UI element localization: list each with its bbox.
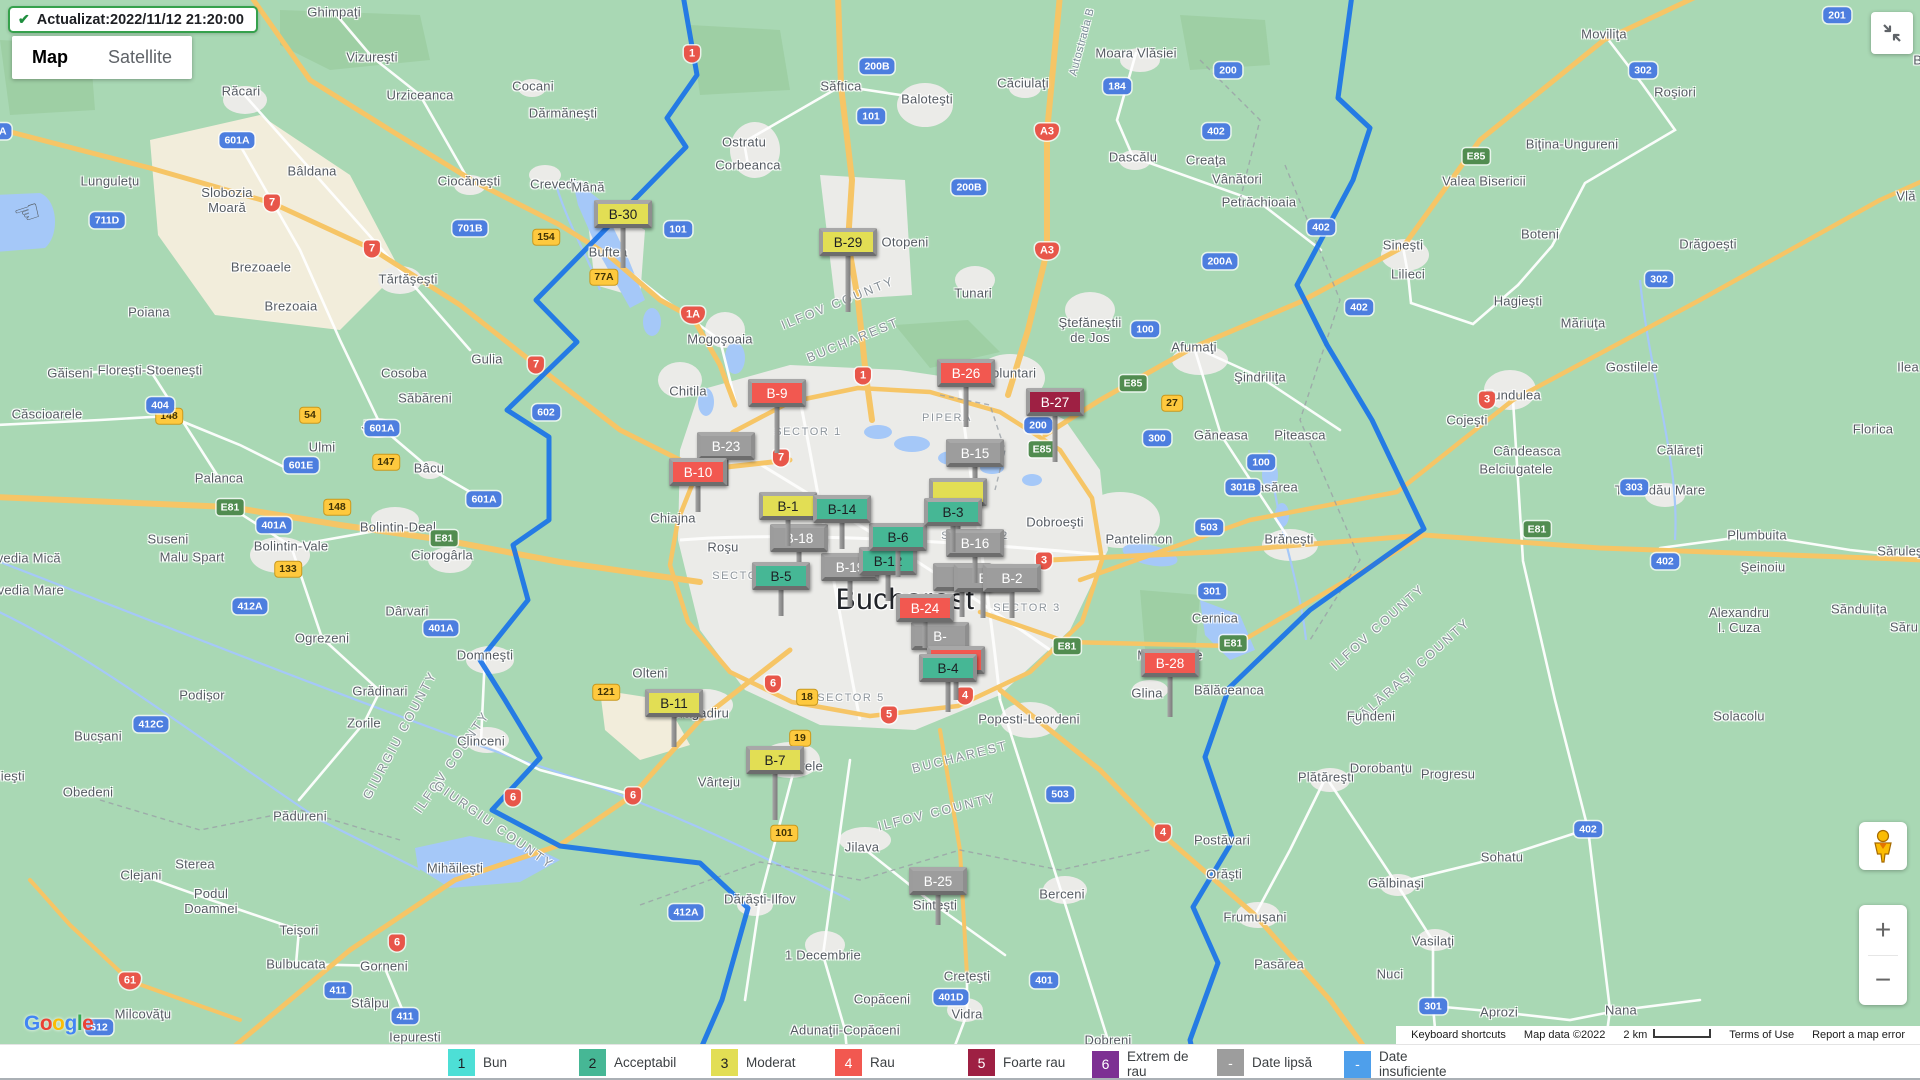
attribution-link[interactable]: Keyboard shortcuts xyxy=(1402,1029,1515,1041)
legend-color-swatch: 6 xyxy=(1092,1051,1119,1078)
collapse-arrows-icon xyxy=(1880,21,1904,45)
city-label: Bucharest xyxy=(836,584,975,616)
legend-item: 3Moderat xyxy=(711,1049,796,1076)
legend-label: Bun xyxy=(483,1055,507,1070)
legend-label: Date lipsă xyxy=(1252,1055,1312,1070)
legend-label: Date insuficiente xyxy=(1379,1049,1447,1079)
legend-item: 6Extrem de rau xyxy=(1092,1049,1189,1079)
legend-item: 4Rau xyxy=(835,1049,895,1076)
fullscreen-toggle-button[interactable] xyxy=(1871,12,1913,54)
legend-label: Acceptabil xyxy=(614,1055,676,1070)
map-scale: 2 km xyxy=(1614,1029,1720,1041)
attribution-bar: Keyboard shortcutsMap data ©20222 kmTerm… xyxy=(1396,1026,1920,1044)
legend-color-swatch: 3 xyxy=(711,1049,738,1076)
legend-item: -Date insuficiente xyxy=(1344,1049,1447,1079)
legend-color-swatch: 1 xyxy=(448,1049,475,1076)
google-logo-letter: g xyxy=(65,1012,77,1035)
zoom-control: + − xyxy=(1859,905,1907,1005)
legend-color-swatch: - xyxy=(1217,1049,1244,1076)
legend-item: -Date lipsă xyxy=(1217,1049,1312,1076)
last-updated-text: Actualizat:2022/11/12 21:20:00 xyxy=(37,12,244,28)
legend-item: 2Acceptabil xyxy=(579,1049,676,1076)
google-logo-letter: G xyxy=(24,1012,40,1035)
legend-color-swatch: 5 xyxy=(968,1049,995,1076)
google-logo-letter: o xyxy=(40,1012,52,1035)
legend-label: Foarte rau xyxy=(1003,1055,1065,1070)
map-canvas[interactable] xyxy=(0,0,1920,1080)
pegman-icon xyxy=(1868,829,1898,863)
google-logo-letter: e xyxy=(82,1012,93,1035)
google-logo-letter: o xyxy=(52,1012,64,1035)
google-logo: Google xyxy=(24,1012,93,1036)
attribution-link[interactable]: Terms of Use xyxy=(1720,1029,1803,1041)
legend-color-swatch: 2 xyxy=(579,1049,606,1076)
legend-label: Moderat xyxy=(746,1055,796,1070)
air-quality-map-screen: ☜ ILFOV COUNTYBUCHARESTBUCHARESTILFOV CO… xyxy=(0,0,1920,1080)
legend-label: Extrem de rau xyxy=(1127,1049,1189,1079)
last-updated-box: ✔ Actualizat:2022/11/12 21:20:00 xyxy=(8,6,258,33)
map-type-map-button[interactable]: Map xyxy=(12,36,88,79)
pegman-button[interactable] xyxy=(1859,822,1907,870)
legend-color-swatch: 4 xyxy=(835,1049,862,1076)
legend-item: 1Bun xyxy=(448,1049,507,1076)
attribution-link[interactable]: Map data ©2022 xyxy=(1515,1029,1615,1041)
zoom-out-button[interactable]: − xyxy=(1859,956,1907,1006)
scale-bar xyxy=(1653,1029,1711,1038)
legend-label: Rau xyxy=(870,1055,895,1070)
legend-color-swatch: - xyxy=(1344,1051,1371,1078)
attribution-link[interactable]: Report a map error xyxy=(1803,1029,1914,1041)
legend-item: 5Foarte rau xyxy=(968,1049,1065,1076)
map-type-satellite-button[interactable]: Satellite xyxy=(88,36,192,79)
air-quality-legend: 1Bun2Acceptabil3Moderat4Rau5Foarte rau6E… xyxy=(0,1044,1920,1080)
check-icon: ✔ xyxy=(18,11,30,28)
map-type-toggle: Map Satellite xyxy=(12,36,192,79)
zoom-in-button[interactable]: + xyxy=(1859,905,1907,955)
